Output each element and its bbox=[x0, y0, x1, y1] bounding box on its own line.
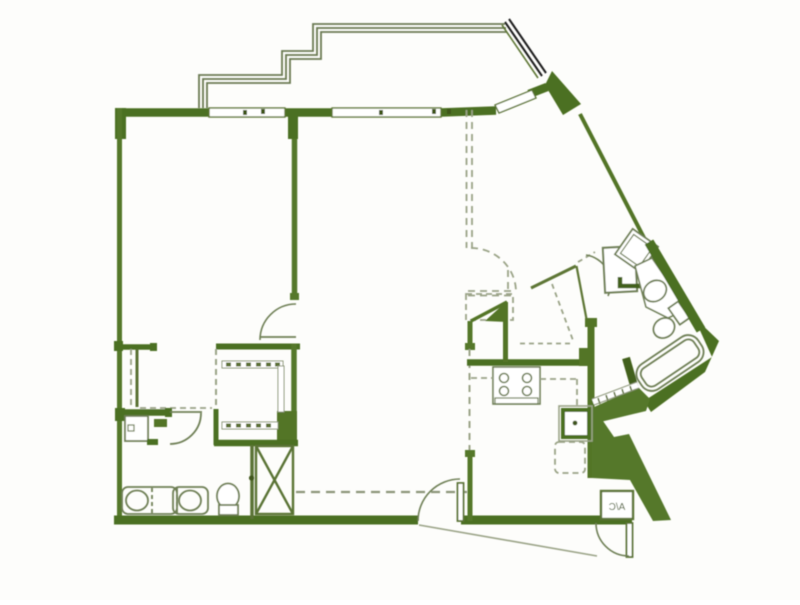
svg-text:Ɔ\A: Ɔ\A bbox=[609, 502, 626, 513]
